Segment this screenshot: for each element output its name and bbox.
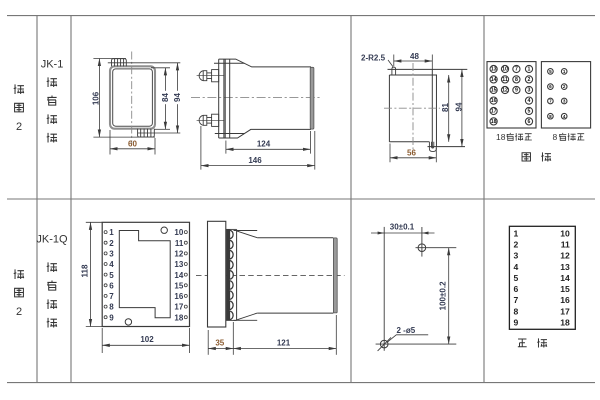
svg-text:12: 12 bbox=[174, 250, 183, 259]
svg-text:14: 14 bbox=[174, 271, 183, 280]
svg-text:8: 8 bbox=[549, 114, 552, 119]
svg-text:8: 8 bbox=[553, 132, 558, 142]
svg-text:5: 5 bbox=[528, 109, 531, 115]
svg-text:146: 146 bbox=[248, 156, 262, 165]
svg-text:118: 118 bbox=[80, 264, 89, 277]
svg-text:18: 18 bbox=[174, 313, 183, 322]
svg-text:9: 9 bbox=[515, 88, 518, 94]
svg-text:7: 7 bbox=[515, 67, 518, 73]
svg-text:4: 4 bbox=[528, 98, 531, 104]
svg-text:3: 3 bbox=[514, 251, 519, 261]
svg-text:1: 1 bbox=[528, 67, 531, 73]
svg-text:6: 6 bbox=[549, 84, 552, 89]
svg-text:13: 13 bbox=[174, 260, 183, 269]
svg-text:4: 4 bbox=[563, 114, 566, 119]
svg-text:35: 35 bbox=[215, 339, 224, 348]
svg-text:6: 6 bbox=[528, 119, 531, 125]
svg-text:8: 8 bbox=[515, 77, 518, 83]
svg-text:5: 5 bbox=[549, 69, 552, 74]
svg-text:15: 15 bbox=[174, 281, 183, 290]
svg-text:2-R2.5: 2-R2.5 bbox=[361, 54, 386, 63]
svg-text:13: 13 bbox=[491, 67, 497, 73]
svg-text:2: 2 bbox=[109, 239, 114, 248]
svg-text:17: 17 bbox=[174, 303, 183, 312]
svg-text:10: 10 bbox=[560, 228, 570, 238]
svg-text:18: 18 bbox=[491, 119, 497, 125]
svg-text:84: 84 bbox=[161, 93, 170, 102]
svg-text:5: 5 bbox=[514, 273, 519, 283]
svg-text:16: 16 bbox=[560, 295, 570, 305]
svg-text:16: 16 bbox=[174, 292, 183, 301]
svg-text:5: 5 bbox=[109, 271, 114, 280]
svg-text:7: 7 bbox=[514, 295, 519, 305]
svg-text:2: 2 bbox=[563, 84, 566, 89]
svg-text:14: 14 bbox=[560, 273, 570, 283]
svg-text:18: 18 bbox=[560, 317, 570, 327]
svg-text:106: 106 bbox=[91, 91, 100, 105]
svg-text:12: 12 bbox=[560, 251, 570, 261]
svg-text:17: 17 bbox=[491, 109, 497, 115]
svg-text:2: 2 bbox=[528, 77, 531, 83]
svg-text:3: 3 bbox=[563, 99, 566, 104]
svg-text:6: 6 bbox=[109, 281, 114, 290]
svg-text:10: 10 bbox=[174, 228, 183, 237]
svg-text:94: 94 bbox=[455, 102, 464, 111]
svg-text:2 -ø5: 2 -ø5 bbox=[397, 326, 416, 335]
svg-text:15: 15 bbox=[560, 284, 570, 294]
svg-text:8: 8 bbox=[514, 306, 519, 316]
svg-text:1: 1 bbox=[563, 69, 566, 74]
svg-text:1: 1 bbox=[109, 228, 114, 237]
svg-text:11: 11 bbox=[561, 240, 570, 250]
svg-text:6: 6 bbox=[514, 284, 519, 294]
svg-text:121: 121 bbox=[277, 339, 291, 348]
svg-text:JK-1: JK-1 bbox=[41, 59, 64, 71]
svg-text:102: 102 bbox=[140, 335, 154, 344]
svg-text:94: 94 bbox=[173, 93, 182, 102]
svg-text:60: 60 bbox=[128, 139, 137, 148]
svg-text:56: 56 bbox=[407, 148, 416, 157]
svg-text:30±0.1: 30±0.1 bbox=[390, 222, 415, 231]
svg-text:4: 4 bbox=[109, 260, 114, 269]
svg-text:3: 3 bbox=[528, 88, 531, 94]
svg-text:16: 16 bbox=[491, 98, 497, 104]
svg-text:4: 4 bbox=[514, 262, 519, 272]
svg-text:11: 11 bbox=[502, 77, 508, 83]
svg-text:1: 1 bbox=[514, 228, 519, 238]
svg-text:9: 9 bbox=[514, 317, 519, 327]
svg-text:7: 7 bbox=[549, 99, 552, 104]
svg-text:2: 2 bbox=[16, 121, 22, 133]
svg-text:2: 2 bbox=[514, 240, 519, 250]
svg-text:124: 124 bbox=[257, 140, 271, 149]
svg-text:10: 10 bbox=[502, 67, 508, 73]
svg-text:JK-1Q: JK-1Q bbox=[36, 234, 68, 246]
svg-text:7: 7 bbox=[109, 292, 114, 301]
svg-text:3: 3 bbox=[109, 250, 114, 259]
svg-text:11: 11 bbox=[175, 239, 184, 248]
svg-text:2: 2 bbox=[16, 306, 22, 318]
svg-text:100±0.2: 100±0.2 bbox=[438, 281, 447, 310]
svg-text:13: 13 bbox=[560, 262, 570, 272]
svg-text:14: 14 bbox=[491, 77, 497, 83]
svg-text:8: 8 bbox=[109, 303, 114, 312]
svg-text:81: 81 bbox=[441, 103, 450, 112]
svg-text:18: 18 bbox=[496, 132, 506, 142]
svg-text:48: 48 bbox=[410, 52, 419, 61]
svg-text:15: 15 bbox=[491, 88, 497, 94]
svg-text:17: 17 bbox=[560, 306, 570, 316]
svg-text:12: 12 bbox=[502, 88, 508, 94]
svg-text:9: 9 bbox=[109, 313, 114, 322]
